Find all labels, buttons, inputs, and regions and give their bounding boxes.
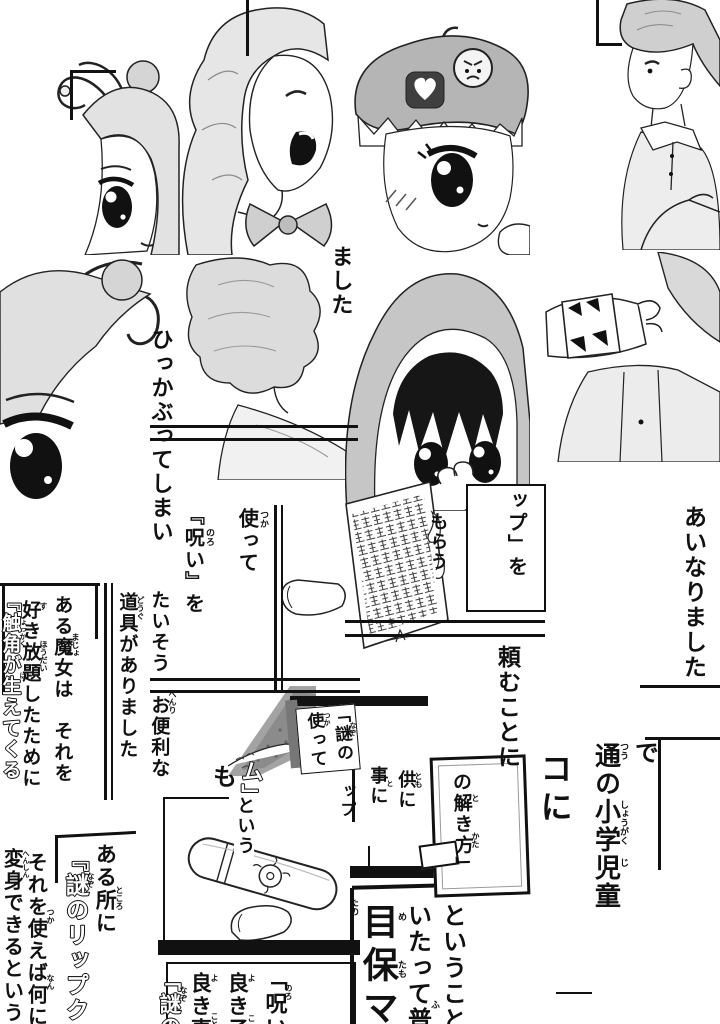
text-henshin: 変身できるという <box>2 848 22 1024</box>
wavy-girl-art <box>178 0 360 255</box>
ruby-sukihoudai-2: ほうだい <box>39 640 47 672</box>
text-taisou: たいそう お便利な <box>149 590 168 779</box>
text-rippu-wo: ップ」を <box>506 490 526 578</box>
text-ainari: あいなりました <box>680 505 703 680</box>
text-itatte: いたって普 <box>405 903 429 1024</box>
text-toiukoto: ということ <box>440 903 464 1024</box>
ruby-sukihoudai-1: す <box>39 602 47 610</box>
panel-border <box>158 940 360 955</box>
panel-border <box>246 0 249 56</box>
text-tomo-ni: 供に <box>396 770 414 810</box>
text-hikkabutte: ひっかぶってしまい <box>148 328 170 544</box>
panel-border <box>150 438 358 441</box>
ruby-metamo-1: め <box>396 912 405 921</box>
ruby-shougaku-2: しょうがく <box>618 800 627 845</box>
panel-border <box>368 846 370 868</box>
ruby-yoki-koto-2: こと <box>210 1012 218 1024</box>
ruby-shokkaku-1: しょっかく <box>19 612 26 647</box>
curse-undo-sign-panel <box>430 754 531 897</box>
beret-girl-art <box>350 18 530 255</box>
text-metamo: 目保マ <box>358 903 395 1024</box>
ruby-sore-wo-2: なん <box>46 974 54 990</box>
bracelet-arm-art <box>528 252 720 462</box>
panel-border <box>658 740 661 870</box>
panel-border <box>150 690 360 693</box>
panel-border <box>290 696 428 706</box>
text-morau: もらう <box>428 512 446 572</box>
boy-polo-art <box>593 0 720 250</box>
panel-border <box>556 992 592 994</box>
ruby-yoki-ko-1: よ <box>247 974 255 982</box>
panel-border <box>150 425 358 428</box>
text-tokikata: の解き方」 <box>450 772 473 878</box>
text-tanomu: 頼むことに <box>494 645 517 770</box>
panel-border <box>163 797 229 799</box>
panel-border <box>56 831 136 838</box>
text-shougaku: 通の小学児童 <box>592 742 619 910</box>
panel-border <box>55 835 58 883</box>
text-mashita: ました <box>328 245 350 317</box>
ruby-noroi-wo: のろ <box>204 528 213 546</box>
text-yoki-koto: 良き事 <box>189 972 210 1024</box>
ruby-koto-ni: と <box>386 780 393 787</box>
panel-border <box>345 634 545 637</box>
ruby-tsukatte: つか <box>258 510 267 528</box>
text-sign-ppu: ップ <box>338 783 354 819</box>
text-nazo-rippu: 『謎のリップク <box>62 848 85 1023</box>
panel-border <box>274 505 277 691</box>
small-thumb-art <box>226 898 296 942</box>
text-mo: も <box>210 764 234 790</box>
ruby-shougaku-3: じ <box>618 858 627 867</box>
ruby-itatte: ふ <box>429 1000 438 1009</box>
text-nazo-panel: 「謎の <box>158 970 179 1024</box>
text-koto-ni: 事に <box>368 766 386 806</box>
text-tano-furigana: たの <box>348 898 357 916</box>
ruby-noroi-panel: のろ <box>284 984 292 1000</box>
ruby-tokikata-2: かた <box>471 832 479 848</box>
text-majo: ある魔女は それを <box>52 595 71 784</box>
ruby-sign-nazono: なぞ <box>349 722 356 736</box>
antenna-girl-top-art <box>55 55 185 255</box>
ruby-shokkaku-2: は <box>19 672 26 679</box>
ruby-yoki-ko-2: こ <box>247 1014 255 1022</box>
ruby-majo: まじょ <box>71 633 79 657</box>
panel-border <box>281 505 283 691</box>
ruby-taisou: べんり <box>168 690 176 714</box>
ruby-dougu: どうぐ <box>136 596 144 620</box>
ruby-yoki-koto-1: よ <box>210 974 218 982</box>
ruby-aru-tokoro: ところ <box>115 886 123 910</box>
panel-border <box>70 70 116 73</box>
text-noroi-panel: 「呪い <box>262 968 284 1024</box>
panel-border <box>111 583 113 800</box>
panel-border <box>163 797 165 942</box>
ruby-nazo-rippu: なぞ <box>86 872 94 888</box>
text-yoki-ko: 良き子 <box>226 972 247 1024</box>
text-ko-ni: コに <box>538 752 571 828</box>
text-de: で <box>632 740 656 766</box>
panel-border <box>596 0 599 46</box>
panel-border <box>70 70 73 120</box>
panel-border <box>150 678 360 681</box>
text-shokkaku: 『触角が生えてくる <box>0 592 19 781</box>
ruby-tokikata-1: と <box>471 794 479 802</box>
panel-border <box>0 583 100 586</box>
text-noroi-wo: 『呪い』を <box>183 505 203 615</box>
panel-border <box>95 583 98 639</box>
text-tsukatte: 使って <box>237 508 257 574</box>
text-aru-tokoro: ある所に <box>94 843 115 935</box>
manga-page: ひっかぶってしまい ました 使って つか 『呪い』を のろ たいそう お便利な … <box>0 0 720 1024</box>
panel-border <box>104 583 107 800</box>
panel-border <box>596 43 622 46</box>
text-dougu: 道具がありました <box>117 592 136 760</box>
text-mu: ム」 <box>238 760 260 808</box>
ruby-metamo-2: たも <box>396 960 405 978</box>
back-of-head-girl-art <box>178 255 346 480</box>
ruby-nazo-panel: なぞ <box>179 986 187 1002</box>
panel-border <box>345 620 545 623</box>
ruby-sore-wo-1: つか <box>46 908 54 924</box>
ruby-henshin: へんしん <box>22 850 29 878</box>
ruby-tomo-ni: とも <box>414 772 422 788</box>
panel-border <box>640 685 720 688</box>
ruby-shougaku-1: つう <box>618 742 627 760</box>
